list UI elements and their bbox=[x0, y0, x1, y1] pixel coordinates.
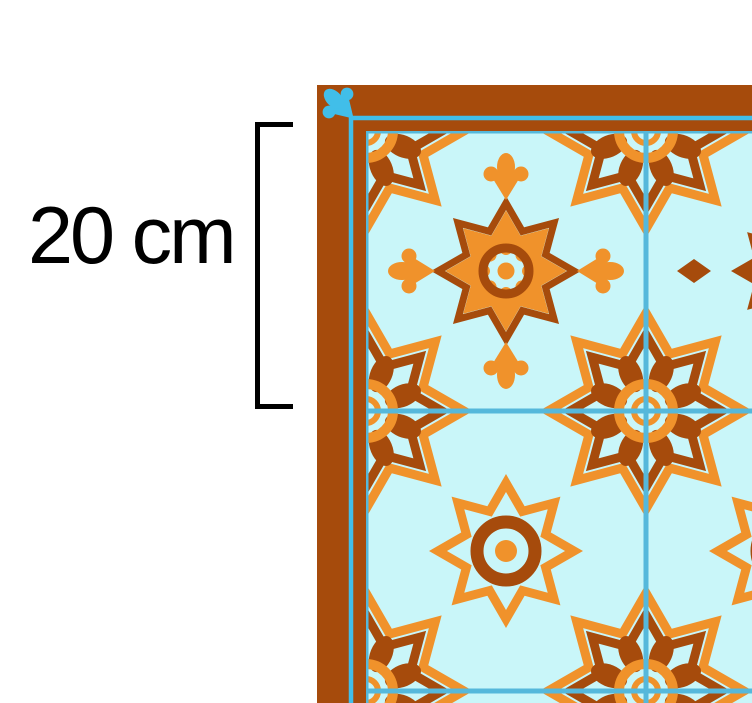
tile-field bbox=[366, 131, 752, 703]
dimension-label: 20 cm bbox=[28, 190, 234, 283]
dimension-bracket bbox=[258, 125, 294, 407]
rug-graphic bbox=[0, 0, 752, 703]
tile-measurement-diagram: 20 cm bbox=[0, 0, 752, 703]
